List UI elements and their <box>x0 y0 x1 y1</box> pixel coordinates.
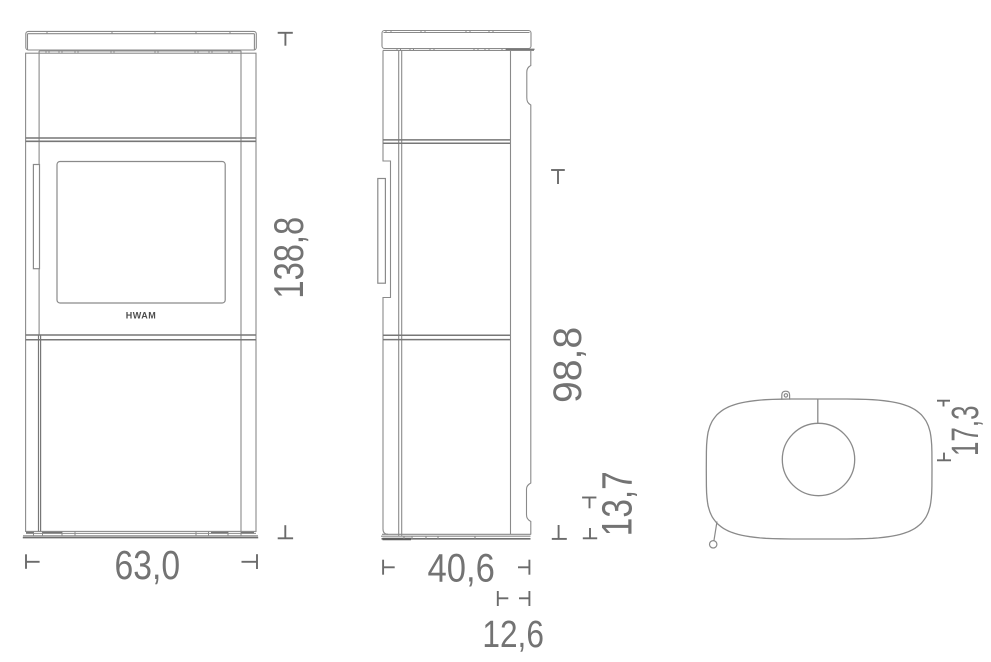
svg-text:HWAM: HWAM <box>126 311 157 321</box>
svg-text:138,8: 138,8 <box>265 217 312 299</box>
svg-text:12,6: 12,6 <box>482 614 544 655</box>
svg-text:40,6: 40,6 <box>428 545 495 590</box>
svg-text:13,7: 13,7 <box>594 471 642 536</box>
svg-text:98,8: 98,8 <box>545 327 590 403</box>
svg-text:17,3: 17,3 <box>943 405 986 456</box>
svg-text:63,0: 63,0 <box>115 542 181 588</box>
